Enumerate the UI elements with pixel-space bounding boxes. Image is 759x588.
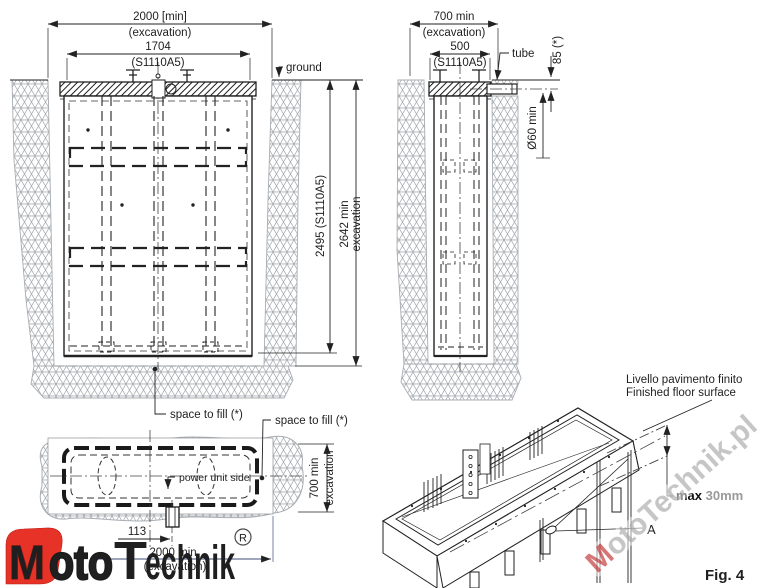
soil-left-wall-side xyxy=(397,80,428,364)
logo: M oto T echnik R xyxy=(6,528,251,588)
front-dim-2642-label: 2642 min xyxy=(339,200,351,247)
ground-leader xyxy=(279,67,283,77)
top-dim-700-label: 700 min xyxy=(309,458,321,499)
front-view: 2000 [min] (excavation) 1704 (S1110A5) g… xyxy=(10,11,363,421)
power-unit-tube xyxy=(166,507,179,527)
soil-bottom xyxy=(31,366,293,398)
side-dim-85-label: 85 (*) xyxy=(552,36,564,64)
side-dim-700-label: 700 min xyxy=(434,11,475,23)
tube-leader xyxy=(497,53,509,80)
ground-label: ground xyxy=(286,62,322,74)
front-dim-1704-sublabel: (S1110A5) xyxy=(131,57,184,69)
side-view: 700 min (excavation) 500 (S1110A5) tube … xyxy=(397,11,564,400)
power-unit-label: power unit side xyxy=(179,472,250,484)
logo-t: T xyxy=(114,531,147,588)
floor-label-line1: Livello pavimento finito xyxy=(626,374,742,386)
technical-drawing-page: 2000 [min] (excavation) 1704 (S1110A5) g… xyxy=(0,0,759,588)
space-to-fill-label-front: space to fill (*) xyxy=(170,409,243,421)
top-dim-700-sublabel: excavation xyxy=(324,451,336,506)
soil-left-wall xyxy=(12,80,54,366)
side-dim-60-label: Ø60 min xyxy=(527,106,539,149)
lift-unit-front xyxy=(60,62,256,372)
side-dim-700-sublabel: (excavation) xyxy=(423,27,486,39)
logo-echnik: echnik xyxy=(145,537,235,588)
space-to-fill-label-top: space to fill (*) xyxy=(275,415,348,427)
floor-label-line2: Finished floor surface xyxy=(626,387,736,399)
lift-unit-side xyxy=(429,62,491,372)
logo-m: M xyxy=(9,537,45,588)
side-dim-500-sublabel: (S1110A5) xyxy=(433,57,486,69)
tube-label: tube xyxy=(512,48,534,60)
registered-letter: R xyxy=(239,533,247,545)
front-dim-2642-sublabel: excavation xyxy=(351,197,363,252)
front-dim-2000-label: 2000 [min] xyxy=(133,11,187,23)
front-dim-2000-sublabel: (excavation) xyxy=(129,27,192,39)
excavation-drawing: 2000 [min] (excavation) 1704 (S1110A5) g… xyxy=(0,0,759,588)
figure-label: Fig. 4 xyxy=(705,567,745,584)
space-to-fill-dot-top xyxy=(260,476,265,481)
logo-oto: oto xyxy=(49,537,113,588)
front-dim-2495-label: 2495 (S1110A5) xyxy=(315,175,327,257)
front-dim-1704-label: 1704 xyxy=(145,41,171,53)
soil-right-wall-side xyxy=(492,96,518,364)
soil-bottom-side xyxy=(401,364,521,400)
soil-right-wall xyxy=(264,80,301,366)
floor-label-leader xyxy=(643,400,712,431)
side-dim-500-label: 500 xyxy=(450,41,469,53)
